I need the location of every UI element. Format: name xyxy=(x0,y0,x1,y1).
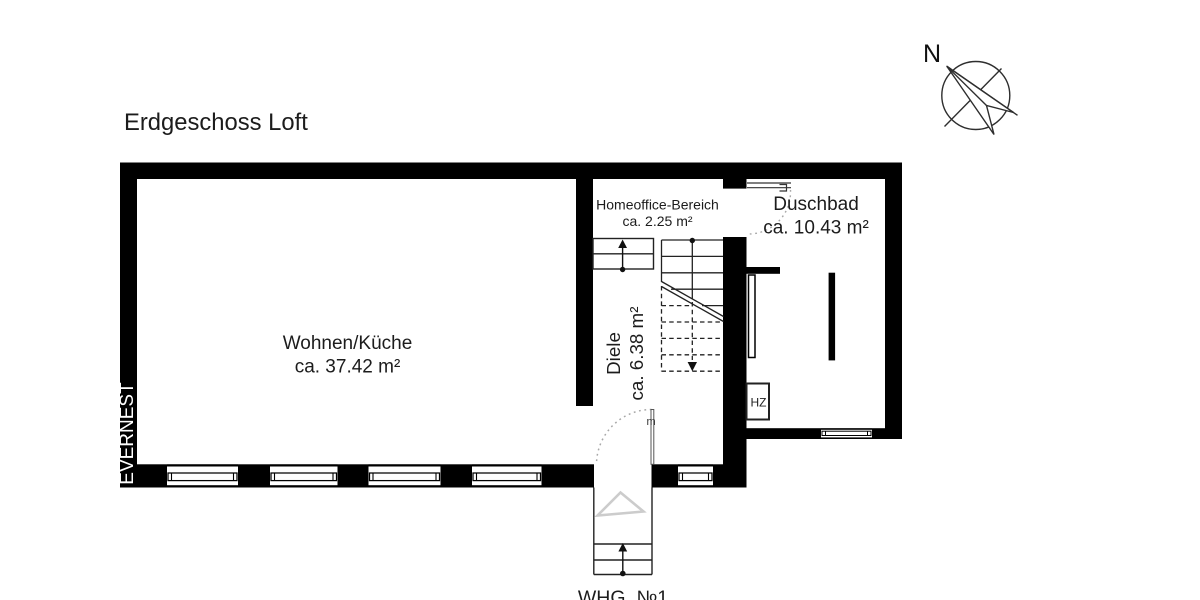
svg-text:ca. 6.38 m²: ca. 6.38 m² xyxy=(626,307,647,401)
svg-text:N: N xyxy=(923,40,941,68)
svg-text:Homeoffice-Bereich: Homeoffice-Bereich xyxy=(596,197,719,213)
svg-text:Erdgeschoss Loft: Erdgeschoss Loft xyxy=(124,109,308,136)
svg-text:HZ: HZ xyxy=(751,396,767,410)
svg-text:ca. 37.42 m²: ca. 37.42 m² xyxy=(295,357,401,378)
svg-text:m: m xyxy=(647,416,656,428)
svg-text:ca. 10.43 m²: ca. 10.43 m² xyxy=(763,218,869,239)
svg-text:ca. 2.25 m²: ca. 2.25 m² xyxy=(622,213,692,229)
svg-text:Diele: Diele xyxy=(603,332,624,375)
svg-text:Wohnen/Küche: Wohnen/Küche xyxy=(283,333,413,354)
svg-text:EVERNEST: EVERNEST xyxy=(117,382,138,485)
svg-text:WHG. №1: WHG. №1 xyxy=(578,587,668,600)
svg-text:Duschbad: Duschbad xyxy=(773,194,859,215)
